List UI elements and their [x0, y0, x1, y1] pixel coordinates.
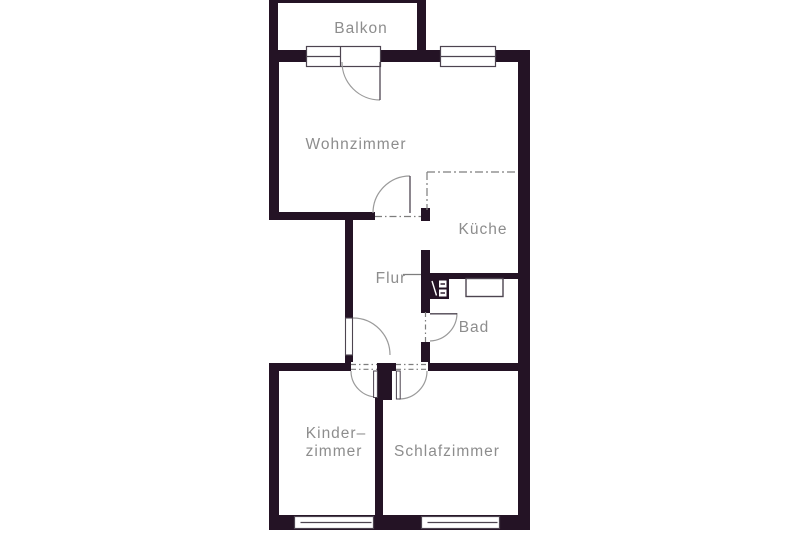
wall-left-lower: [269, 363, 279, 530]
schlafzimmer-door: [396, 371, 427, 399]
flur-door: [346, 318, 391, 355]
wall-partition: [375, 397, 383, 517]
wall-wohnzimmer-bottom: [269, 212, 375, 220]
wall-partition-stub: [377, 363, 392, 400]
room-label-flur: Flur: [376, 270, 407, 287]
kinderzimmer-door: [351, 371, 377, 398]
wall-right: [518, 50, 530, 530]
room-label-balkon: Balkon: [334, 20, 387, 37]
fixtures: [428, 278, 503, 299]
floor-plan: Balkon Wohnzimmer Küche Flur Bad Kinder–…: [0, 0, 800, 534]
balcony-parapet-top: [269, 0, 426, 3]
balcony-wall-right: [417, 0, 426, 58]
room-label-kinderzimmer-line1: Kinder–: [306, 425, 366, 442]
appliance-icon: [428, 278, 449, 299]
wohnzimmer-door: [373, 176, 410, 213]
room-label-wohnzimmer: Wohnzimmer: [305, 136, 406, 153]
room-label-kueche: Küche: [459, 221, 508, 238]
room-label-kinderzimmer-line2: zimmer: [306, 443, 363, 460]
wall-left-upper: [269, 50, 279, 220]
balcony-door: [342, 62, 380, 100]
floor-plan-canvas: Balkon Wohnzimmer Küche Flur Bad Kinder–…: [0, 0, 800, 534]
room-label-bad: Bad: [459, 319, 490, 336]
room-labels: Balkon Wohnzimmer Küche Flur Bad Kinder–…: [305, 20, 507, 460]
wall-kueche-stub: [421, 208, 430, 221]
doors: [342, 62, 457, 399]
bad-door: [430, 313, 457, 341]
bathtub: [466, 279, 503, 297]
room-label-schlafzimmer: Schlafzimmer: [394, 443, 500, 460]
opening-schlaf-door: [396, 362, 428, 372]
balcony-wall-left: [269, 0, 278, 58]
